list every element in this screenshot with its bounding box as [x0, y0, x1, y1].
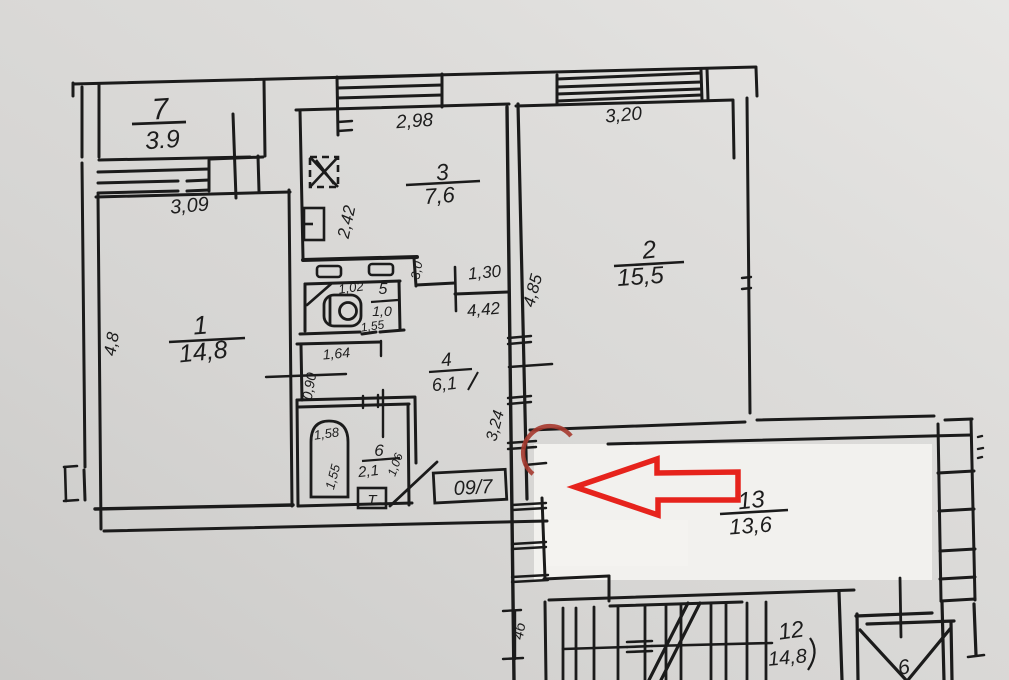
svg-text:14,8: 14,8 [177, 336, 228, 369]
svg-text:5: 5 [379, 281, 388, 298]
svg-text:3,09: 3,09 [169, 193, 210, 218]
svg-text:09/7: 09/7 [453, 476, 494, 500]
svg-text:13,6: 13,6 [728, 512, 773, 540]
svg-text:1,0: 1,0 [372, 303, 392, 319]
svg-text:4б: 4б [510, 621, 530, 641]
svg-text:2: 2 [640, 235, 658, 264]
svg-text:1,30: 1,30 [467, 262, 502, 284]
svg-text:4,42: 4,42 [466, 299, 501, 321]
svg-text:3.9: 3.9 [144, 125, 181, 155]
svg-text:15,5: 15,5 [616, 262, 665, 292]
svg-text:2,1: 2,1 [356, 462, 380, 481]
svg-text:6,1: 6,1 [431, 373, 458, 396]
svg-text:12: 12 [776, 615, 805, 644]
svg-text:4: 4 [440, 350, 453, 372]
svg-text:7,6: 7,6 [423, 182, 456, 209]
svg-text:1: 1 [192, 310, 209, 341]
svg-text:14,8: 14,8 [767, 645, 808, 670]
svg-text:2,98: 2,98 [394, 110, 434, 134]
svg-text:3,20: 3,20 [604, 103, 643, 127]
svg-text:1,64: 1,64 [322, 344, 351, 362]
svg-text:6: 6 [374, 441, 384, 460]
